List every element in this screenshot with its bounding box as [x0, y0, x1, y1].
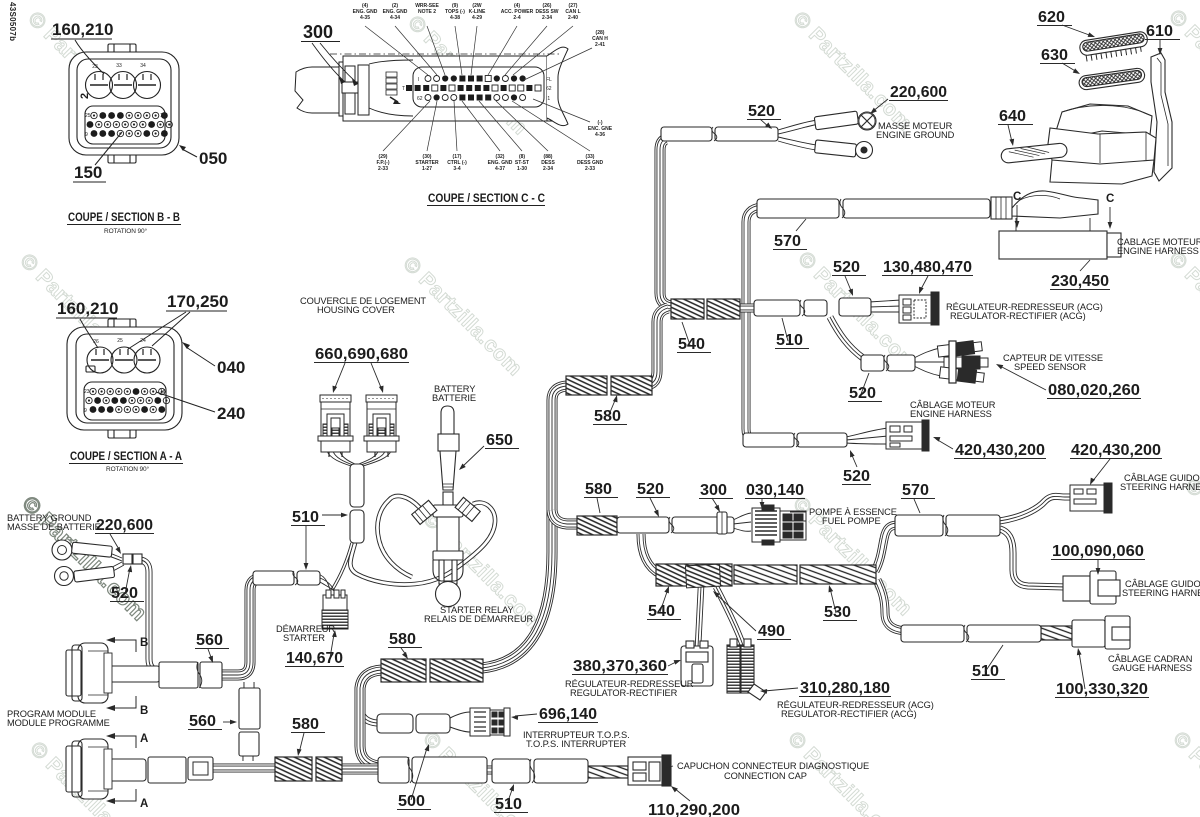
svg-text:STARTER: STARTER	[283, 633, 325, 643]
svg-text:220,600: 220,600	[96, 517, 153, 534]
svg-text:2-34: 2-34	[542, 15, 552, 21]
svg-text:520: 520	[833, 259, 860, 276]
svg-text:380,370,360: 380,370,360	[573, 658, 667, 675]
svg-text:62: 62	[546, 86, 552, 92]
svg-text:4-29: 4-29	[472, 15, 482, 21]
svg-text:2-33: 2-33	[585, 166, 595, 172]
svg-text:580: 580	[594, 408, 621, 425]
svg-text:REGULATOR-RECTIFIER: REGULATOR-RECTIFIER	[570, 688, 678, 698]
svg-text:COUPE / SECTION B - B: COUPE / SECTION B - B	[68, 212, 180, 224]
svg-text:640: 640	[999, 108, 1026, 125]
svg-text:A: A	[140, 733, 148, 745]
svg-text:T.O.P.S. INTERRUPTER: T.O.P.S. INTERRUPTER	[526, 739, 626, 749]
svg-text:110,290,200: 110,290,200	[648, 802, 740, 817]
svg-text:REGULATOR-RECTIFIER (ACG): REGULATOR-RECTIFIER (ACG)	[781, 709, 917, 719]
svg-text:COUPE / SECTION A - A: COUPE / SECTION A - A	[70, 451, 182, 463]
svg-text:2-33: 2-33	[378, 166, 388, 172]
svg-text:530: 530	[824, 604, 851, 621]
svg-text:FL: FL	[546, 77, 552, 83]
svg-text:660,690,680: 660,690,680	[315, 346, 408, 363]
svg-text:230,450: 230,450	[1051, 273, 1109, 290]
svg-text:33: 33	[116, 63, 122, 69]
svg-text:520: 520	[843, 468, 870, 485]
svg-text:ENGINE GROUND: ENGINE GROUND	[876, 130, 955, 140]
svg-text:1: 1	[161, 408, 164, 414]
svg-text:4-35: 4-35	[360, 15, 370, 21]
svg-text:ROTATION 90°: ROTATION 90°	[104, 227, 148, 235]
svg-text:ENGINE HARNESS: ENGINE HARNESS	[910, 409, 992, 419]
svg-text:560: 560	[196, 632, 223, 649]
svg-text:500: 500	[398, 793, 425, 810]
svg-text:FUEL POMPE: FUEL POMPE	[822, 516, 881, 526]
svg-text:160,210: 160,210	[52, 20, 113, 39]
svg-text:580: 580	[292, 716, 319, 733]
svg-text:630: 630	[1041, 47, 1068, 64]
svg-text:050: 050	[199, 149, 227, 168]
svg-text:160,210: 160,210	[57, 299, 118, 318]
svg-text:570: 570	[774, 233, 801, 250]
svg-text:ENGINE HARNESS: ENGINE HARNESS	[1117, 246, 1199, 256]
svg-text:100,330,320: 100,330,320	[1056, 681, 1148, 698]
svg-text:580: 580	[585, 481, 612, 498]
svg-text:3-4: 3-4	[453, 166, 460, 172]
svg-text:4-37: 4-37	[495, 166, 505, 172]
svg-text:150: 150	[74, 163, 102, 182]
svg-text:34: 34	[140, 63, 146, 69]
svg-text:170,250: 170,250	[167, 292, 228, 311]
svg-text:030,140: 030,140	[746, 482, 804, 499]
svg-text:510: 510	[292, 509, 319, 526]
svg-text:REGULATOR-RECTIFIER (ACG): REGULATOR-RECTIFIER (ACG)	[950, 311, 1086, 321]
svg-text:MASSE DE BATTERIE: MASSE DE BATTERIE	[7, 522, 101, 532]
svg-text:9: 9	[84, 408, 87, 414]
svg-text:080,020,260: 080,020,260	[1048, 382, 1140, 399]
svg-text:420,430,200: 420,430,200	[955, 442, 1045, 459]
svg-text:B: B	[140, 637, 148, 649]
svg-text:130,480,470: 130,480,470	[883, 259, 972, 276]
svg-text:696,140: 696,140	[539, 706, 597, 723]
svg-text:B: B	[140, 705, 148, 717]
svg-text:25: 25	[117, 338, 123, 344]
svg-text:C: C	[1013, 191, 1021, 203]
svg-text:1-30: 1-30	[517, 166, 527, 172]
svg-text:C: C	[1106, 193, 1114, 205]
svg-text:1-27: 1-27	[422, 166, 432, 172]
svg-text:4-38: 4-38	[450, 15, 460, 21]
svg-text:CONNECTION CAP: CONNECTION CAP	[724, 771, 807, 781]
svg-text:43S0507b: 43S0507b	[8, 2, 17, 41]
svg-text:490: 490	[758, 623, 785, 640]
svg-text:MODULE PROGRAMME: MODULE PROGRAMME	[7, 718, 110, 728]
svg-text:STEERING HARNESS: STEERING HARNESS	[1120, 482, 1200, 492]
svg-text:1: 1	[161, 132, 164, 138]
svg-text:140,670: 140,670	[286, 650, 343, 667]
svg-text:560: 560	[189, 713, 216, 730]
svg-text:510: 510	[776, 332, 803, 349]
svg-text:HOUSING COVER: HOUSING COVER	[317, 305, 395, 315]
svg-text:SPEED SENSOR: SPEED SENSOR	[1014, 362, 1087, 372]
svg-text:RELAIS DE DÉMARREUR: RELAIS DE DÉMARREUR	[424, 614, 534, 624]
svg-text:220,600: 220,600	[890, 84, 947, 101]
svg-text:A: A	[140, 798, 148, 810]
svg-text:620: 620	[1038, 9, 1065, 26]
svg-text:2-4: 2-4	[513, 15, 520, 21]
svg-text:9: 9	[85, 132, 88, 138]
svg-text:BATTERIE: BATTERIE	[432, 393, 476, 403]
svg-text:2: 2	[79, 93, 91, 99]
svg-text:300: 300	[303, 22, 333, 42]
svg-text:580: 580	[389, 631, 416, 648]
svg-text:610: 610	[1146, 23, 1173, 40]
svg-text:100,090,060: 100,090,060	[1052, 543, 1144, 560]
svg-text:4-36: 4-36	[595, 132, 605, 138]
svg-text:STEERING HARNESS: STEERING HARNESS	[1122, 588, 1200, 598]
svg-text:040: 040	[217, 358, 245, 377]
svg-text:I1: I1	[546, 96, 550, 102]
svg-text:4-34: 4-34	[390, 15, 400, 21]
svg-text:520: 520	[637, 481, 664, 498]
svg-text:GAUGE HARNESS: GAUGE HARNESS	[1112, 663, 1192, 673]
svg-text:16: 16	[160, 113, 166, 119]
svg-text:2-34: 2-34	[543, 166, 553, 172]
svg-text:520: 520	[748, 103, 775, 120]
svg-text:650: 650	[486, 432, 513, 449]
svg-text:420,430,200: 420,430,200	[1071, 442, 1161, 459]
svg-text:540: 540	[648, 603, 675, 620]
svg-text:520: 520	[111, 585, 138, 602]
svg-text:25: 25	[85, 113, 91, 119]
svg-text:NOTE 2: NOTE 2	[418, 9, 436, 15]
svg-text:62: 62	[417, 96, 423, 102]
svg-text:T: T	[402, 86, 405, 92]
svg-text:540: 540	[678, 336, 705, 353]
svg-text:300: 300	[700, 482, 727, 499]
svg-text:2-40: 2-40	[568, 15, 578, 21]
svg-text:ROTATION 90°: ROTATION 90°	[106, 465, 150, 473]
svg-text:I: I	[418, 77, 419, 83]
svg-text:23: 23	[84, 389, 90, 395]
svg-text:570: 570	[902, 482, 929, 499]
svg-text:310,280,180: 310,280,180	[800, 680, 890, 697]
svg-text:COUPE / SECTION C - C: COUPE / SECTION C - C	[428, 193, 545, 205]
svg-text:CAPUCHON CONNECTEUR DIAGNOSTIQ: CAPUCHON CONNECTEUR DIAGNOSTIQUE	[677, 761, 869, 771]
svg-text:2-41: 2-41	[595, 42, 605, 48]
svg-text:520: 520	[849, 385, 876, 402]
svg-text:240: 240	[217, 404, 245, 423]
